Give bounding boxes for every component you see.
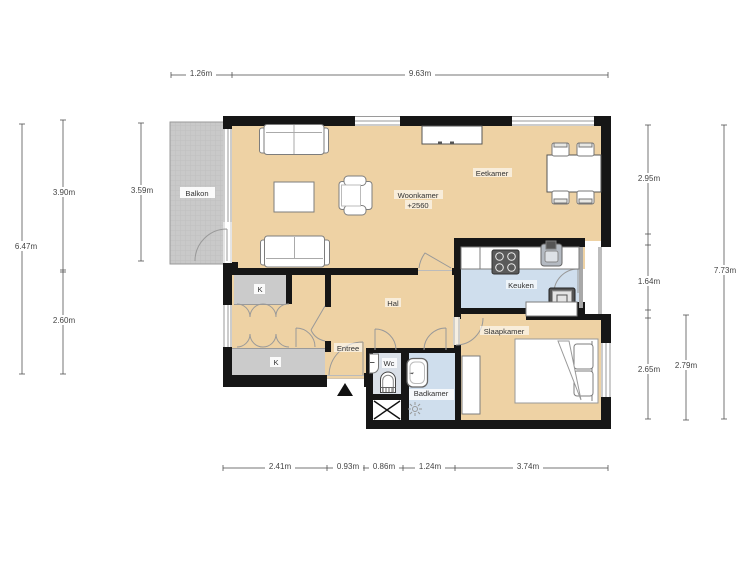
svg-text:Wc: Wc: [384, 359, 395, 368]
svg-text:2.41m: 2.41m: [269, 462, 292, 471]
svg-text:2.95m: 2.95m: [638, 174, 661, 183]
svg-text:Hal: Hal: [387, 299, 399, 308]
svg-text:1.26m: 1.26m: [190, 69, 213, 78]
svg-text:Balkon: Balkon: [185, 189, 208, 198]
svg-text:Woonkamer: Woonkamer: [398, 191, 439, 200]
svg-text:2.65m: 2.65m: [638, 365, 661, 374]
svg-text:1.24m: 1.24m: [419, 462, 442, 471]
svg-text:2.79m: 2.79m: [675, 361, 698, 370]
svg-text:3.59m: 3.59m: [131, 186, 154, 195]
svg-text:K: K: [257, 285, 262, 294]
svg-text:3.90m: 3.90m: [53, 188, 76, 197]
svg-text:2.60m: 2.60m: [53, 316, 76, 325]
svg-text:Slaapkamer: Slaapkamer: [484, 327, 525, 336]
svg-text:0.86m: 0.86m: [373, 462, 396, 471]
svg-text:Entree: Entree: [337, 344, 359, 353]
svg-text:K: K: [273, 358, 278, 367]
svg-text:6.47m: 6.47m: [15, 242, 38, 251]
svg-text:0.93m: 0.93m: [337, 462, 360, 471]
svg-text:Keuken: Keuken: [508, 281, 534, 290]
svg-text:Eetkamer: Eetkamer: [476, 169, 509, 178]
svg-text:+2560: +2560: [407, 201, 428, 210]
svg-text:3.74m: 3.74m: [517, 462, 540, 471]
svg-text:7.73m: 7.73m: [714, 266, 737, 275]
svg-text:9.63m: 9.63m: [409, 69, 432, 78]
svg-text:1.64m: 1.64m: [638, 277, 661, 286]
svg-text:Badkamer: Badkamer: [414, 389, 449, 398]
